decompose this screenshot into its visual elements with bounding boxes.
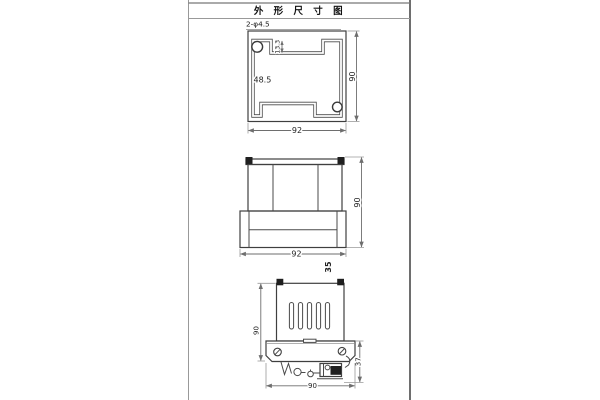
front-view-body <box>248 165 342 212</box>
drawing-title: 外 形 尺 寸 图 <box>253 5 346 17</box>
front-view-width-dim-label: 92 <box>291 250 301 259</box>
side-view-clip-right <box>337 279 344 286</box>
mounting-hole-top-left <box>252 41 263 52</box>
inner-width-dim-label: 48.5 <box>254 76 272 85</box>
front-view-top-strip <box>246 159 344 165</box>
side-view-height-dim-label: 90 <box>252 326 260 335</box>
front-view-height-dim-label: 90 <box>353 197 362 207</box>
side-view: 90 37 90 <box>252 279 363 390</box>
front-view-clip-left <box>246 157 253 165</box>
front-view-base <box>240 211 346 248</box>
dimension-drawing-canvas: 外 形 尺 寸 图 2-φ4.5 13.3 48.5 90 92 <box>0 0 600 400</box>
side-view-clip-left <box>277 279 284 286</box>
drawing-sheet: 外 形 尺 寸 图 2-φ4.5 13.3 48.5 90 92 <box>0 0 600 400</box>
top-view-height-dim-label: 90 <box>348 71 357 81</box>
base-plate-tab <box>304 339 317 342</box>
front-view-clip-right <box>338 157 345 165</box>
front-view: 90 92 35 <box>240 157 364 273</box>
top-view-width-dim-label: 92 <box>292 126 302 135</box>
top-view: 2-φ4.5 13.3 48.5 90 92 <box>246 20 360 136</box>
side-view-width-dim-label: 90 <box>308 382 317 390</box>
hole-callout-label: 2-φ4.5 <box>246 20 270 29</box>
side-view-body <box>277 283 345 341</box>
mounting-hole-bottom-right <box>333 102 343 112</box>
notch-depth-dim-label: 13.3 <box>274 40 281 54</box>
sheet-frame: 外 形 尺 寸 图 <box>189 0 411 400</box>
vent-slots <box>289 303 329 330</box>
depth-dim-label: 35 <box>324 261 333 273</box>
clip-spring <box>281 362 292 375</box>
clip-height-dim-label: 37 <box>355 357 363 366</box>
